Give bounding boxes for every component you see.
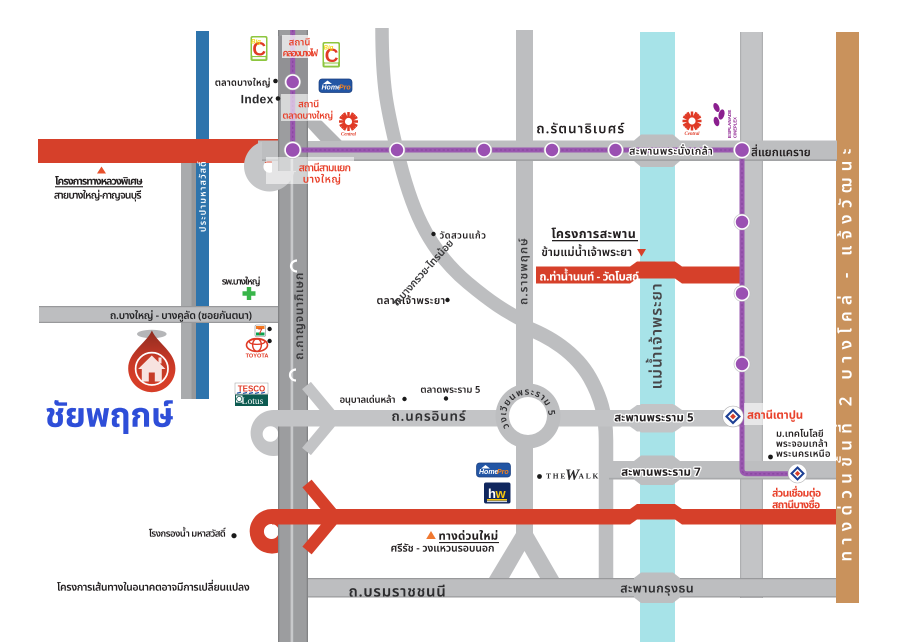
svg-text:Big: Big	[324, 46, 334, 52]
svg-text:ESPLANADE: ESPLANADE	[727, 110, 732, 138]
svg-text:Pro: Pro	[497, 469, 509, 476]
svg-text:w: w	[495, 486, 507, 501]
svg-text:Big: Big	[251, 40, 261, 46]
svg-text:Central: Central	[341, 133, 357, 138]
svg-text:Lotus: Lotus	[242, 397, 264, 407]
svg-text:TOYOTA: TOYOTA	[246, 354, 269, 360]
svg-text:Home: Home	[479, 469, 499, 476]
svg-text:7: 7	[258, 327, 263, 337]
svg-text:ALK: ALK	[579, 472, 601, 481]
svg-text:TESCO: TESCO	[238, 385, 266, 394]
svg-text:CINEPLEX: CINEPLEX	[733, 117, 738, 138]
svg-text:Central: Central	[685, 132, 701, 137]
svg-text:Pro: Pro	[339, 85, 351, 92]
